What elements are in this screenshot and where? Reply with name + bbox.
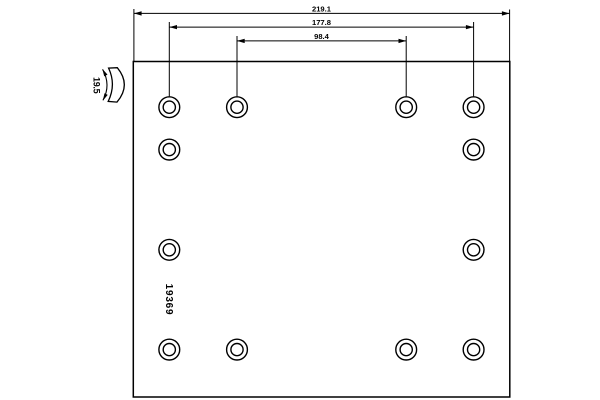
svg-text:19369: 19369 [163, 284, 174, 316]
svg-text:98.4: 98.4 [314, 32, 330, 41]
svg-text:219.1: 219.1 [312, 4, 332, 13]
svg-text:19.5: 19.5 [91, 77, 101, 94]
svg-text:177.8: 177.8 [312, 18, 331, 27]
